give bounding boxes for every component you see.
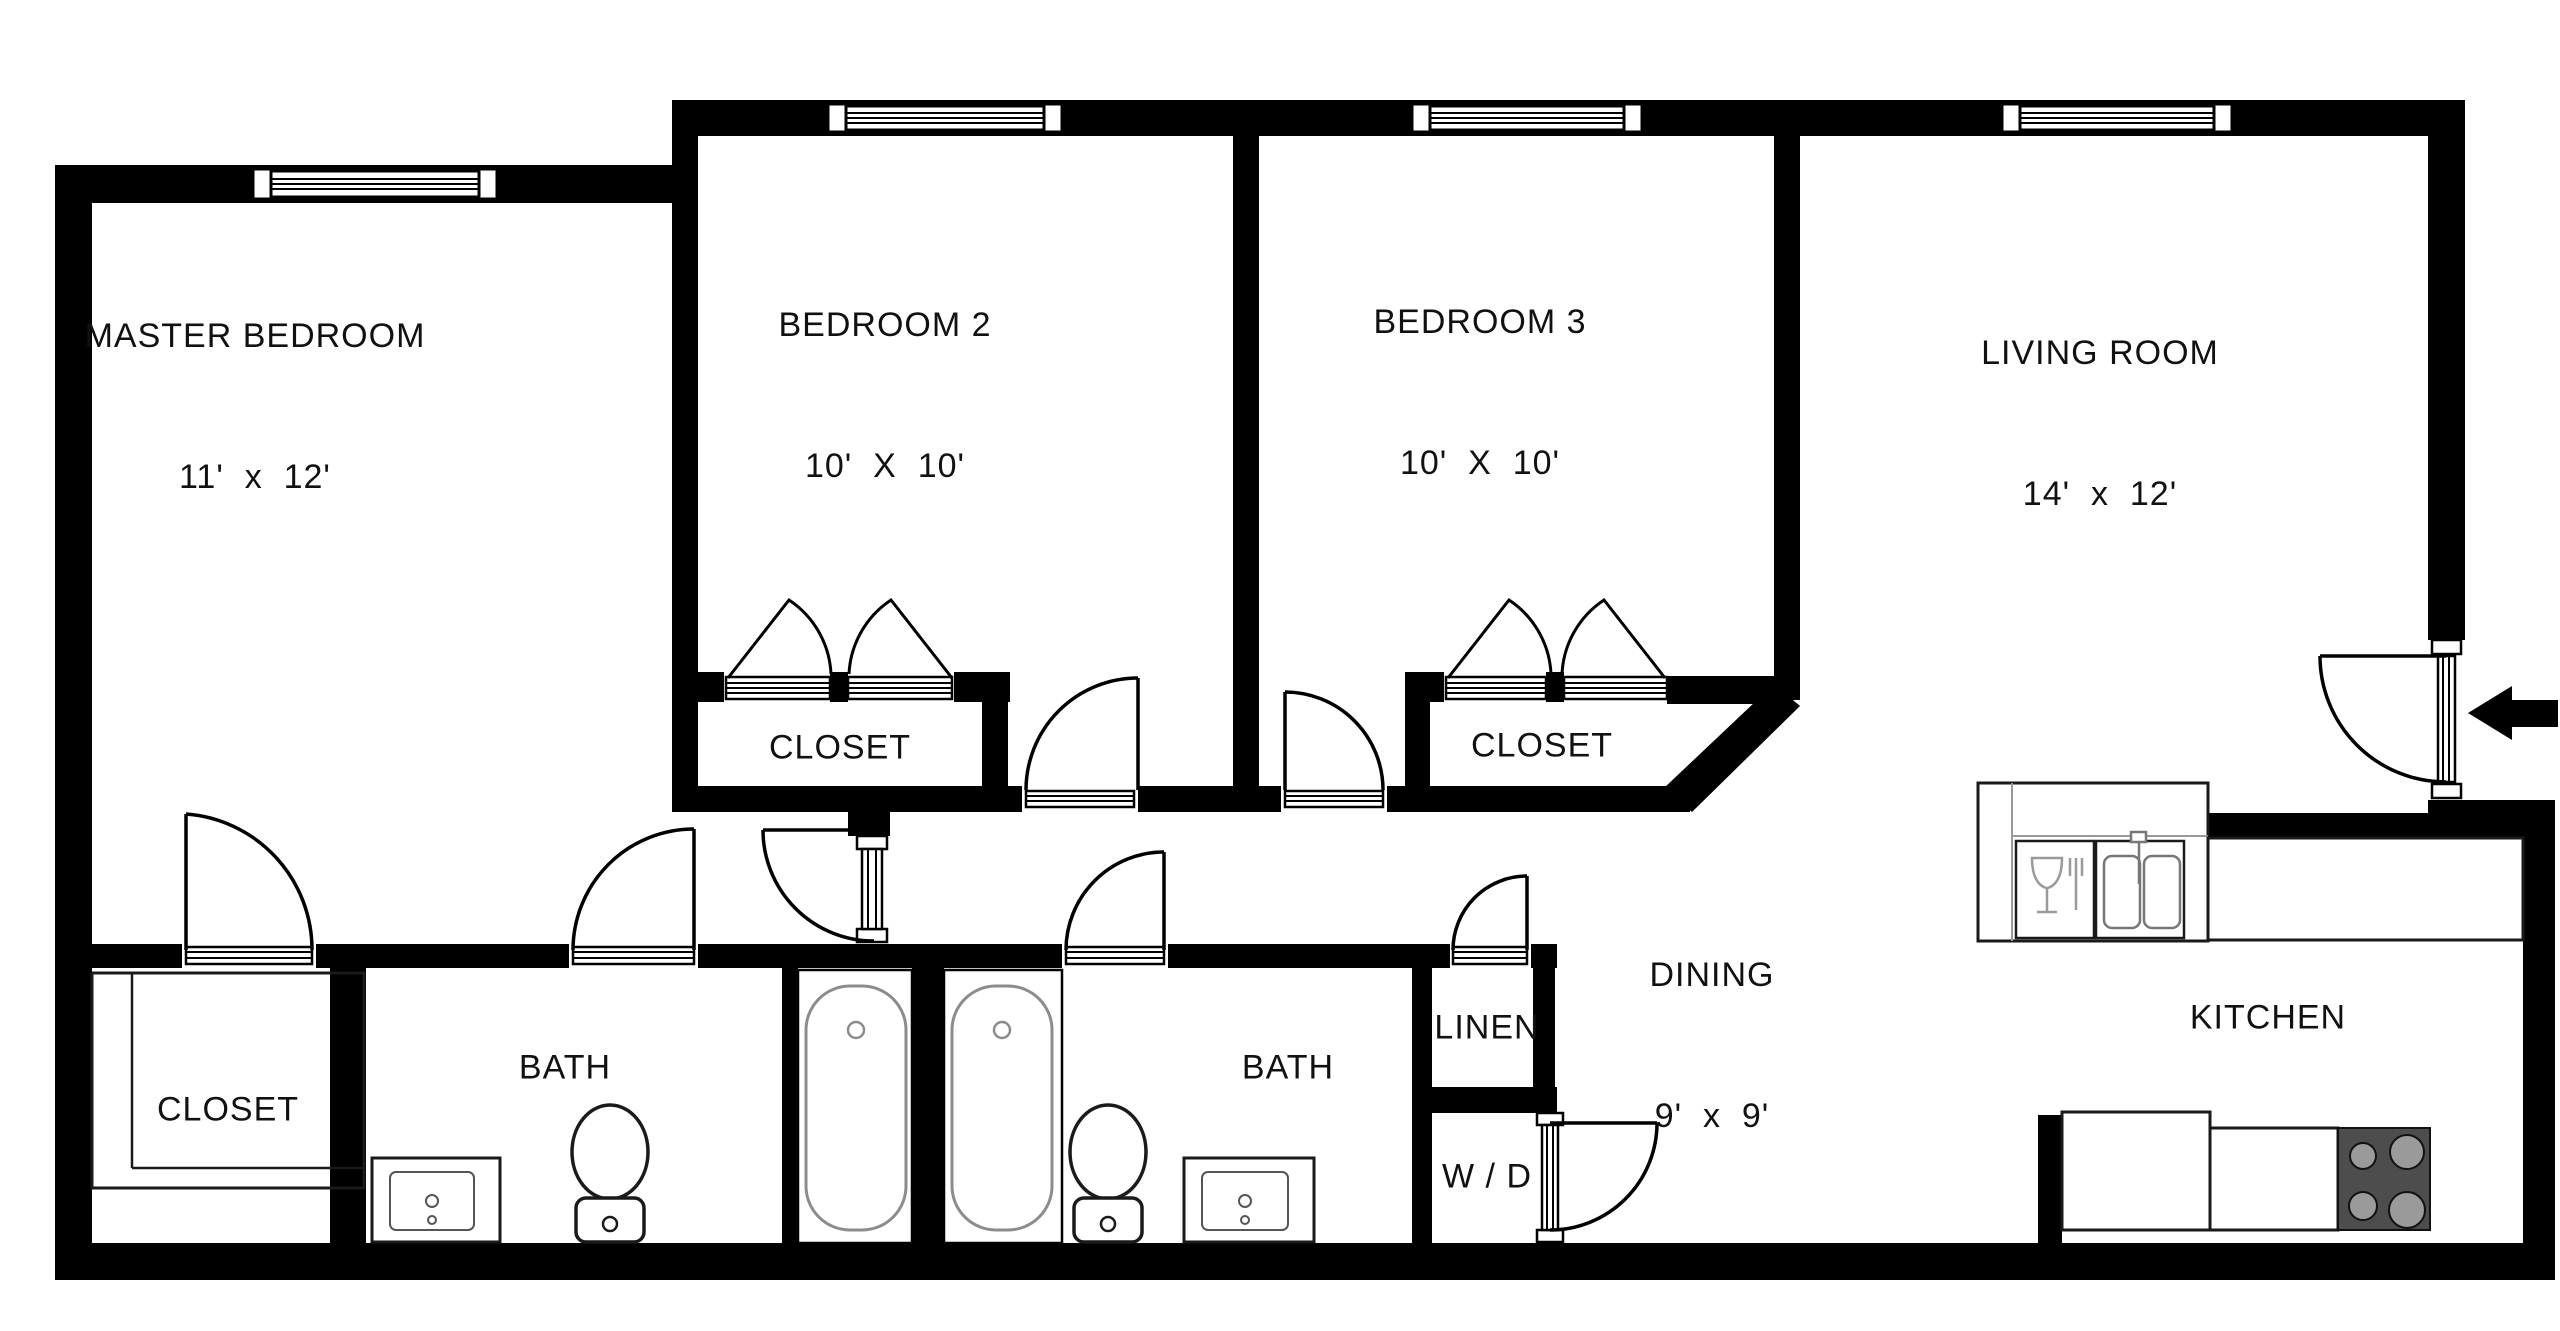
closet-bedroom-2-label: CLOSET [769, 631, 911, 866]
room-dims: 10' X 10' [778, 443, 991, 490]
wall-right-kitchen [2523, 838, 2555, 1280]
window-bedroom-3 [1412, 104, 1642, 132]
closet-master-door [186, 814, 312, 964]
closet-master-label: CLOSET [157, 993, 299, 1228]
room-name: DINING [1650, 952, 1775, 999]
bathtub-2 [944, 970, 1062, 1243]
bath-hall-door [1066, 852, 1164, 964]
toilet-2 [1070, 1105, 1146, 1242]
kitchen-sink [2096, 832, 2184, 938]
room-name: CLOSET [1471, 723, 1613, 770]
bathtub-1 [798, 970, 912, 1243]
bedroom-3-door [1285, 692, 1383, 807]
wall-closet2-stub-left [672, 672, 724, 702]
faucet-icon [2131, 832, 2146, 842]
bath-hall-label: BATH [1242, 951, 1334, 1186]
wall-kitchen-half [2208, 813, 2428, 838]
room-name: LIVING ROOM [1981, 330, 2219, 377]
room-name: BEDROOM 2 [778, 302, 991, 349]
wall-bed3-living [1774, 100, 1800, 700]
wall-right-upper [2428, 100, 2465, 640]
room-name: MASTER BEDROOM [85, 313, 426, 360]
room-name: BEDROOM 3 [1373, 299, 1586, 346]
wall-bath1-bath2 [912, 944, 944, 1243]
room-dims: 14' x 12' [1981, 471, 2219, 518]
room-name: CLOSET [769, 725, 911, 772]
wall-hall-c [698, 944, 1062, 968]
entry-door [2320, 640, 2461, 798]
burner-icon [2390, 1135, 2424, 1169]
room-name: CLOSET [157, 1087, 299, 1134]
room-name: LINEN [1434, 1005, 1539, 1052]
room-name: BATH [1242, 1045, 1334, 1092]
master-bedroom-label: MASTER BEDROOM 11' x 12' [85, 219, 426, 595]
bedroom-2-label: BEDROOM 2 10' X 10' [778, 208, 991, 584]
room-dims: 9' x 9' [1650, 1093, 1775, 1140]
wall-bed2-hall-b [1138, 786, 1259, 812]
washer-dryer-door [1537, 1113, 1657, 1242]
wall-master-bed2 [672, 100, 698, 812]
window-master-bedroom [253, 169, 497, 199]
bath-master-label: BATH [519, 951, 611, 1186]
stove [2338, 1128, 2430, 1230]
bedroom-2-door [1026, 678, 1138, 807]
kitchen-counter-bottom [2210, 1128, 2338, 1230]
burner-icon [2389, 1192, 2425, 1228]
wall-hall-a [77, 944, 182, 968]
floor-plan: MASTER BEDROOM 11' x 12' BEDROOM 2 10' X… [0, 0, 2560, 1331]
room-dims: 11' x 12' [85, 454, 426, 501]
window-living-room [2002, 104, 2232, 132]
kitchen-peninsula [1978, 783, 2208, 941]
room-name: BATH [519, 1045, 611, 1092]
burner-icon [2350, 1143, 2376, 1169]
refrigerator [2062, 1112, 2210, 1230]
wall-bed3-hall-a [1259, 786, 1281, 812]
washer-dryer-label: W / D [1442, 1060, 1532, 1295]
wall-bottom [55, 1243, 2555, 1280]
vanity-sink-1 [372, 1158, 500, 1242]
room-name: W / D [1442, 1154, 1532, 1201]
wall-right-jog [2428, 800, 2555, 840]
wall-bed2-bed3 [1233, 100, 1259, 812]
wall-closet1-bath1 [330, 944, 366, 1243]
closet-bedroom-3-label: CLOSET [1471, 629, 1613, 864]
bath-master-door [573, 829, 694, 964]
dishwasher [2016, 841, 2094, 938]
living-room-label: LIVING ROOM 14' x 12' [1981, 236, 2219, 612]
kitchen-label: KITCHEN [2190, 901, 2346, 1136]
room-name: KITCHEN [2190, 995, 2346, 1042]
window-bedroom-2 [828, 104, 1062, 132]
entry-arrow-icon [2468, 686, 2558, 740]
wall-closet2-right [982, 672, 1008, 812]
wall-kitchen-stub [2038, 1115, 2062, 1243]
bedroom-3-label: BEDROOM 3 10' X 10' [1373, 205, 1586, 581]
wall-tub1-left [782, 968, 798, 1243]
burner-icon [2349, 1192, 2377, 1220]
dining-label: DINING 9' x 9' [1650, 858, 1775, 1234]
wall-bed3-hall-b [1387, 786, 1405, 812]
wall-closet3-stub-right [1667, 676, 1777, 704]
room-dims: 10' X 10' [1373, 440, 1586, 487]
wall-closet3-left [1405, 672, 1430, 812]
